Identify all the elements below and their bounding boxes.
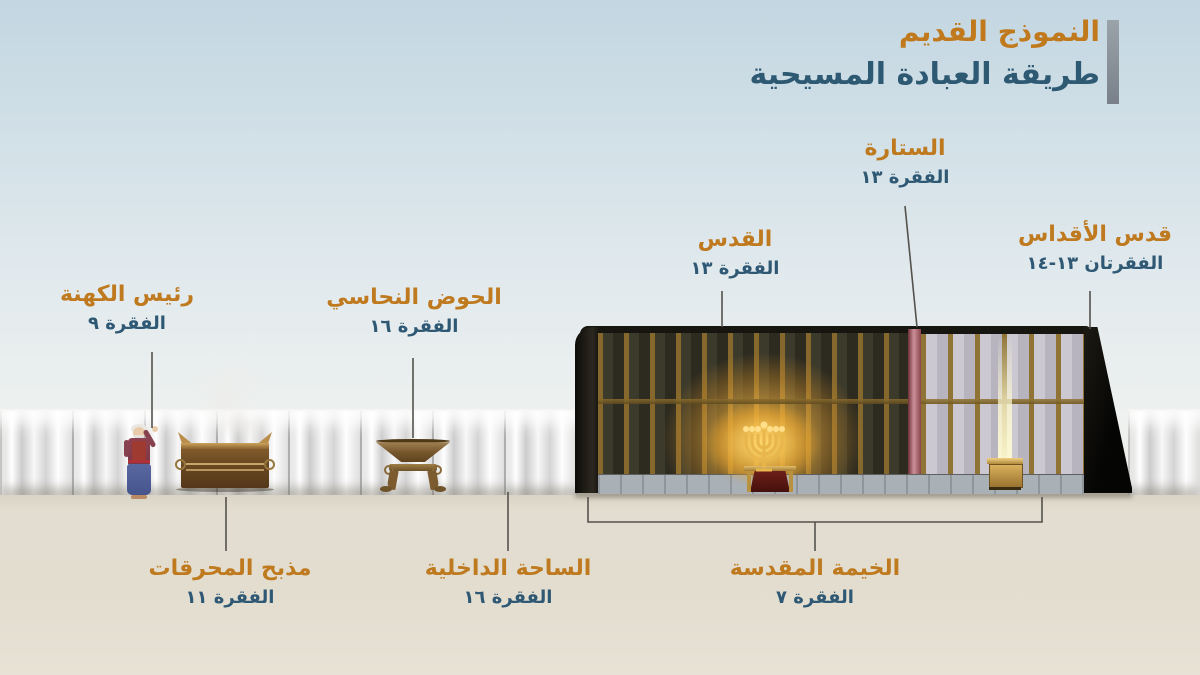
altar-band bbox=[186, 463, 264, 465]
stand-leg bbox=[747, 471, 751, 492]
label-inner-court-ref: الفقرة ١٦ bbox=[403, 587, 613, 609]
altar-rim bbox=[181, 443, 269, 449]
priest-belt bbox=[128, 460, 150, 463]
headline-accent-bar bbox=[1107, 20, 1119, 104]
label-curtain-title: الستارة bbox=[805, 136, 1005, 162]
ark-body bbox=[989, 464, 1023, 488]
label-high-priest-title: رئيس الكهنة bbox=[37, 282, 217, 308]
tent-left-cover bbox=[575, 327, 600, 493]
label-sacred-tent-title: الخيمة المقدسة bbox=[710, 556, 920, 582]
priest-hand bbox=[152, 426, 158, 432]
label-sacred-tent-ref: الفقرة ٧ bbox=[710, 587, 920, 609]
ark-light-beam bbox=[998, 338, 1012, 460]
ark-of-covenant bbox=[987, 456, 1023, 492]
label-burnt-altar: مذبح المحرقات الفقرة ١١ bbox=[125, 556, 335, 609]
stand-leg bbox=[789, 471, 793, 492]
high-priest-figure bbox=[112, 424, 168, 502]
altar-band bbox=[186, 469, 264, 471]
headline-line2: طريقة العبادة المسيحية bbox=[620, 58, 1100, 93]
bronze-basin bbox=[376, 436, 450, 494]
label-inner-court: الساحة الداخلية الفقرة ١٦ bbox=[403, 556, 613, 609]
label-burnt-altar-title: مذبح المحرقات bbox=[125, 556, 335, 582]
label-high-priest-ref: الفقرة ٩ bbox=[37, 313, 217, 335]
basin-foot bbox=[380, 486, 392, 492]
ark-base bbox=[989, 487, 1021, 490]
basin-stand bbox=[389, 464, 437, 471]
menorah-icon bbox=[734, 414, 794, 474]
basin-foot bbox=[434, 486, 446, 492]
priest-robe bbox=[127, 464, 151, 495]
altar-smoke bbox=[194, 360, 270, 440]
altar-body bbox=[181, 443, 269, 488]
headline: النموذج القديم طريقة العبادة المسيحية bbox=[620, 16, 1100, 93]
label-sacred-tent: الخيمة المقدسة الفقرة ٧ bbox=[710, 556, 920, 609]
altar-ring bbox=[264, 459, 275, 470]
label-holy-of-holies: قدس الأقداس الفقرتان ١٣-١٤ bbox=[995, 222, 1195, 275]
altar-ring bbox=[175, 459, 186, 470]
label-curtain: الستارة الفقرة ١٣ bbox=[805, 136, 1005, 189]
priest-arm bbox=[124, 440, 129, 457]
label-holy-of-holies-title: قدس الأقداس bbox=[995, 222, 1195, 248]
label-high-priest: رئيس الكهنة الفقرة ٩ bbox=[37, 282, 217, 335]
label-burnt-altar-ref: الفقرة ١١ bbox=[125, 587, 335, 609]
label-holy-place-title: القدس bbox=[645, 227, 825, 253]
label-holy-place: القدس الفقرة ١٣ bbox=[645, 227, 825, 280]
label-holy-of-holies-ref: الفقرتان ١٣-١٤ bbox=[995, 253, 1195, 275]
burnt-offering-altar bbox=[178, 432, 272, 492]
priest-feet bbox=[131, 495, 147, 499]
label-bronze-basin: الحوض النحاسي الفقرة ١٦ bbox=[319, 285, 509, 338]
basin-bowl bbox=[376, 440, 450, 462]
veil-curtain bbox=[908, 329, 921, 492]
label-curtain-ref: الفقرة ١٣ bbox=[805, 167, 1005, 189]
courtyard-fence-left bbox=[0, 409, 578, 495]
label-bronze-basin-title: الحوض النحاسي bbox=[319, 285, 509, 311]
headline-line1: النموذج القديم bbox=[620, 16, 1100, 48]
label-bronze-basin-ref: الفقرة ١٦ bbox=[319, 316, 509, 338]
label-holy-place-ref: الفقرة ١٣ bbox=[645, 258, 825, 280]
label-inner-court-title: الساحة الداخلية bbox=[403, 556, 613, 582]
slide-old-model-diagram: الستارة الفقرة ١٣ القدس الفقرة ١٣ قدس ال… bbox=[0, 0, 1200, 675]
tent-right-cover bbox=[1084, 327, 1132, 493]
courtyard-fence-right bbox=[1128, 409, 1200, 495]
pointer-curtain bbox=[905, 206, 917, 327]
